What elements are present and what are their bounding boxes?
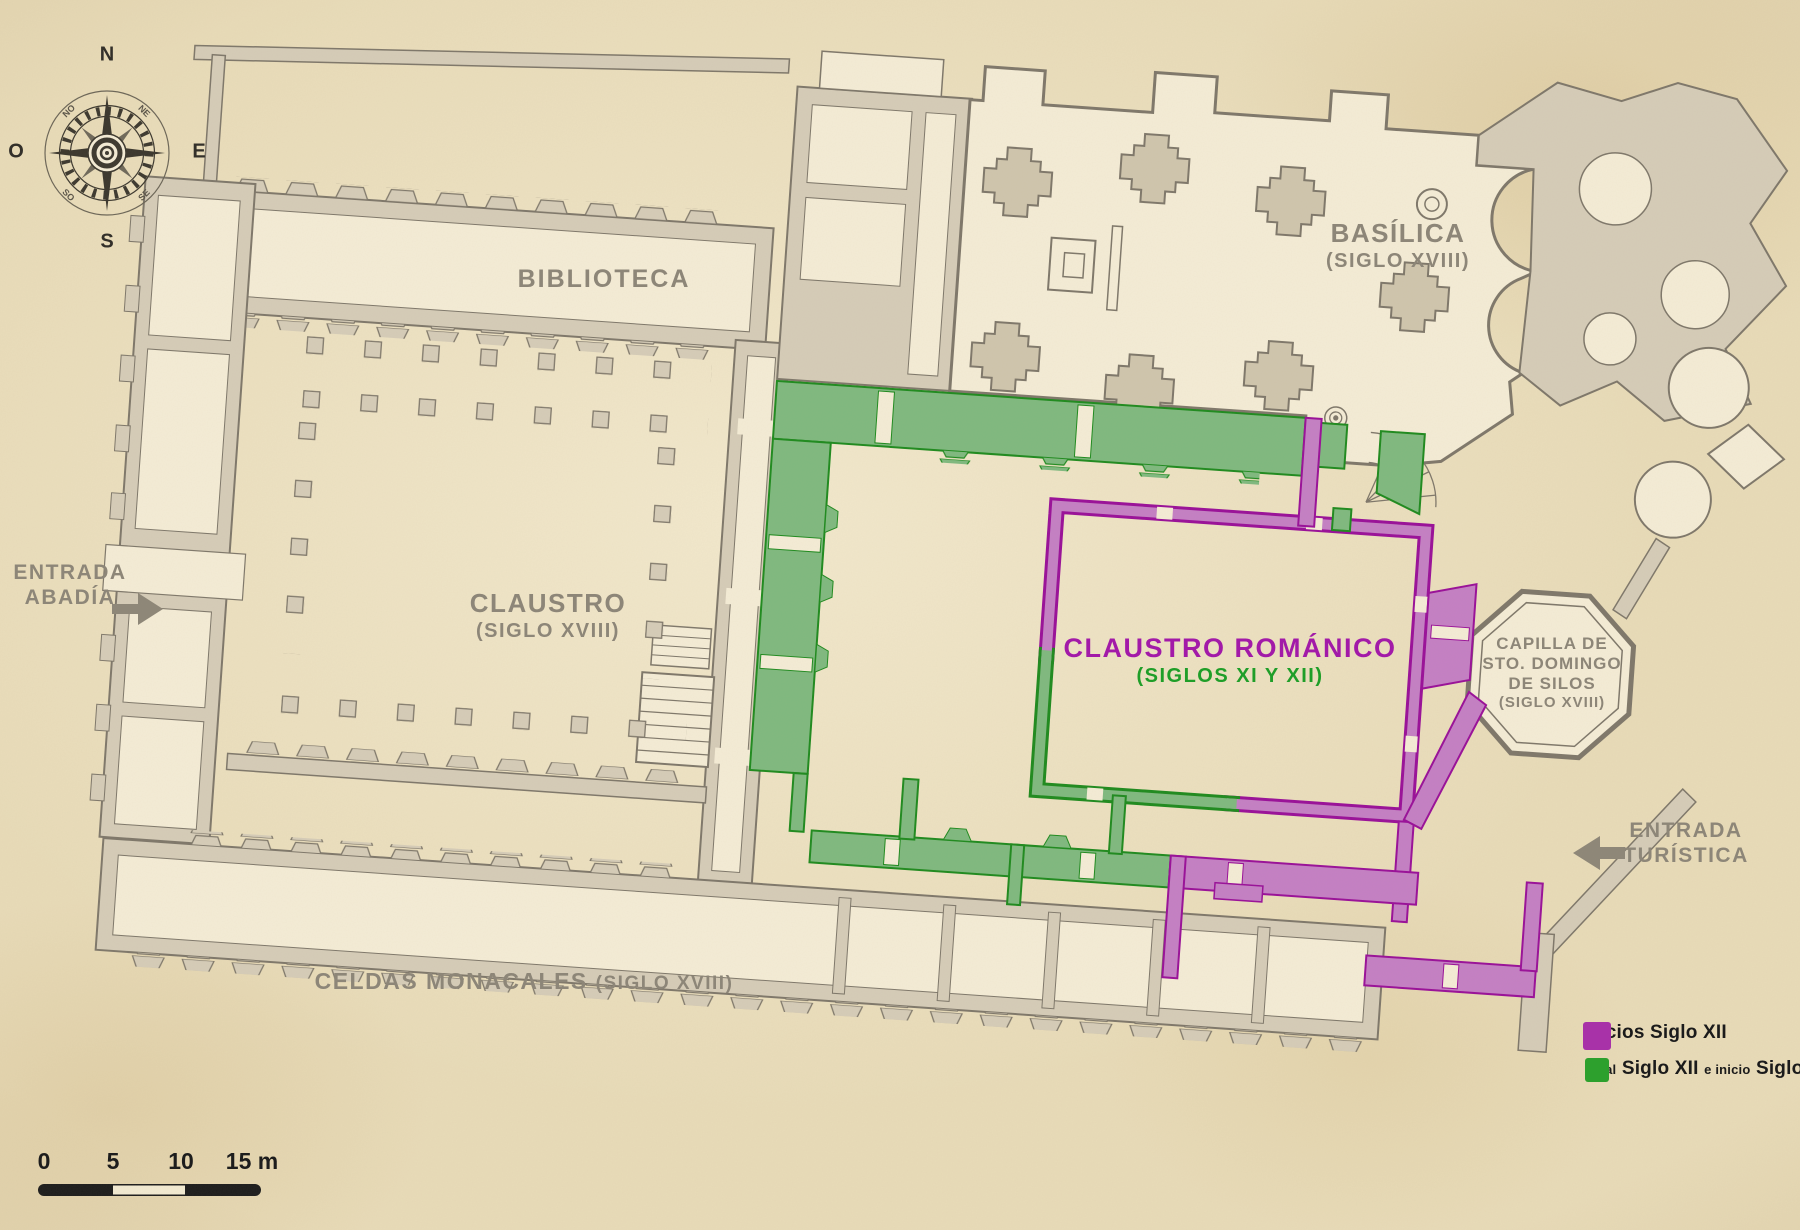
legend-label-late-12th-13th: Final Siglo XII e inicio Siglo XIII: [1585, 1058, 1800, 1080]
compass-east-label: E: [192, 141, 205, 164]
entrada-abadia-line2: ABADÍA: [13, 585, 126, 610]
monastery-structure: [77, 0, 1800, 1079]
label-celdas: CELDAS MONACALES (SIGLO XVIII): [315, 968, 734, 996]
claustro-romanico-name: CLAUSTRO ROMÁNICO: [1064, 633, 1397, 663]
legend-part-e-inicio: e inicio: [1704, 1062, 1750, 1077]
scale-tick-15m: 15 m: [226, 1148, 278, 1175]
capilla-line1: CAPILLA DE: [1482, 634, 1621, 654]
round-turret: [1416, 188, 1448, 220]
celdas-name: CELDAS MONACALES: [315, 968, 588, 994]
scale-bar: [38, 1184, 261, 1196]
scale-tick-5: 5: [107, 1148, 120, 1175]
entrada-turistica-line1: ENTRADA: [1623, 818, 1749, 843]
claustro-name: CLAUSTRO: [470, 588, 626, 618]
label-biblioteca: BIBLIOTECA: [518, 264, 691, 294]
claustro-era: (SIGLO XVIII): [470, 619, 626, 643]
legend-part-siglo-xii: Siglo XII: [1622, 1058, 1699, 1079]
claustro-romanico-era: (SIGLOS XI Y XII): [1064, 664, 1397, 688]
legend-item-late-12th-13th: Final Siglo XII e inicio Siglo XIII: [1585, 1058, 1800, 1080]
label-claustro-romanico: CLAUSTRO ROMÁNICO (SIGLOS XI Y XII): [1064, 632, 1397, 688]
basilica-name: BASÍLICA: [1331, 218, 1466, 248]
capilla-line3: DE SILOS: [1482, 674, 1621, 694]
capilla-era: (SIGLO XVIII): [1482, 694, 1621, 712]
label-entrada-turistica: ENTRADA TURÍSTICA: [1623, 818, 1749, 868]
label-claustro: CLAUSTRO (SIGLO XVIII): [470, 588, 626, 643]
compass-south-label: S: [100, 231, 113, 254]
south-rooms-purple: [1169, 856, 1419, 905]
basilica-era: (SIGLO XVIII): [1326, 249, 1470, 273]
gray-walls-18th-century: [77, 0, 1800, 1079]
legend-item-early-12th: Inicios Siglo XII: [1583, 1022, 1727, 1044]
forecourt-rooms: [777, 50, 975, 391]
scale-tick-0: 0: [38, 1148, 51, 1175]
entrada-turistica-line2: TURÍSTICA: [1623, 843, 1749, 868]
label-capilla: CAPILLA DE STO. DOMINGO DE SILOS (SIGLO …: [1482, 634, 1621, 712]
compass-north-label: N: [100, 44, 114, 67]
compass-west-label: O: [8, 141, 24, 164]
celdas-era: (SIGLO XVIII): [596, 973, 734, 994]
entrada-abadia-line1: ENTRADA: [13, 560, 126, 585]
scale-tick-10: 10: [168, 1148, 194, 1175]
monastery-floor-plan: { "labels": { "biblioteca": "BIBLIOTECA"…: [0, 0, 1800, 1230]
legend-part-siglo-xiii: Siglo XIII: [1756, 1058, 1800, 1079]
legend-swatch-green: [1585, 1058, 1609, 1082]
floor-plan-svg: [0, 0, 1800, 1230]
label-basilica: BASÍLICA (SIGLO XVIII): [1326, 218, 1470, 273]
label-entrada-abadia: ENTRADA ABADÍA: [13, 560, 126, 610]
capilla-line2: STO. DOMINGO: [1482, 654, 1621, 674]
legend-swatch-purple: [1583, 1022, 1611, 1050]
